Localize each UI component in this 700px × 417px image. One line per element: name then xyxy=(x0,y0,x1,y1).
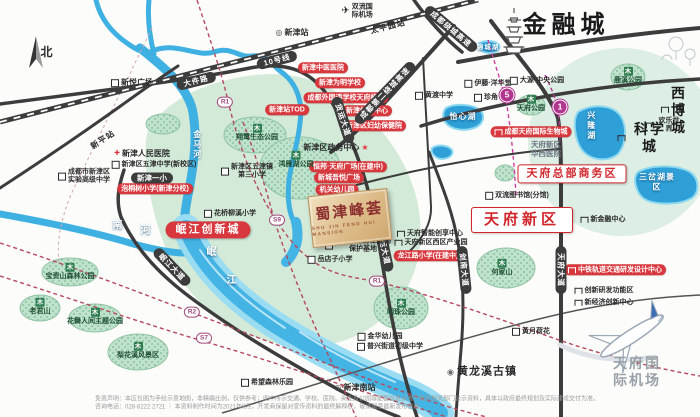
airplane-icon: ✈ xyxy=(341,6,349,18)
building-square-icon xyxy=(474,94,482,102)
label-wujin-no3-primary-text: 新津区五津镇 第三小学 xyxy=(231,164,273,181)
label-wujin-middle-school: 新津区五津中学(新校区) xyxy=(112,161,197,169)
building-square-icon xyxy=(241,379,249,387)
river-label-sanchahu: 三岔湖景区 xyxy=(636,172,679,191)
road-label-jiannan-avenue-text: 剑南大道 xyxy=(458,253,471,288)
label-happy-world-text: 欢乐世界 xyxy=(656,118,682,135)
metro-badge-line5: 5 xyxy=(500,88,515,103)
badge-zhongtie-rail-center: 中铁轨道交通研发设计中心 xyxy=(564,264,666,275)
park-label-huawurenjian: 木花舞人间主题公园 xyxy=(67,308,123,326)
label-ito-yokado: 伊藤·洋华堂 xyxy=(464,80,511,88)
badge-xinjin-tcm-hospital: 新津中医医院 xyxy=(298,62,348,73)
label-xinjin-no1-primary-text: 新津一小 xyxy=(137,174,167,183)
hospital-cross-icon: ✚ xyxy=(114,150,120,158)
label-renmin-hospital: ✚新津人民医院 xyxy=(114,149,170,159)
label-ito-yokado-text: 伊藤·洋华堂 xyxy=(474,80,511,88)
label-yuedianzi-primary-text: 岳店子小学 xyxy=(318,256,353,264)
road-label-line10-text: 10号线 xyxy=(263,52,292,67)
river-label-jinmahe-text: 金马河 xyxy=(192,130,202,160)
road-label-line10: 10号线 xyxy=(256,50,299,71)
station-label-taipingyuanzhan: 太平园站 xyxy=(369,18,406,36)
label-tianfu-airport-text: 天府国际机场 xyxy=(606,355,669,389)
badge-longjianglu-primary-text: 龙江路小学(在建中) xyxy=(398,252,459,260)
label-puxing-middle-school-text: 普兴街道初级中学 xyxy=(367,343,423,351)
label-new-finance-center: 新金融中心 xyxy=(581,216,626,224)
park-label-xiangly-eco-park: 木翔鹭生态公园 xyxy=(236,124,278,142)
badge-weiming-school: 新津为明学校 xyxy=(315,77,365,88)
label-huaqiao-liuxi-primary-text: 花桥柳溪小学 xyxy=(214,210,256,218)
map-labels: 北金融城西博城科学城天府国际机场◉黄龙溪古镇天府总部商务区天府新区岷江创新城新津… xyxy=(0,0,700,417)
project-logo: 蜀津峰荟SHU JIN FENG HUI MANSION xyxy=(308,188,393,248)
badge-fuyou-hospital-text: 新津区妇幼保健院 xyxy=(346,122,402,130)
label-new-economy-center: 新经济创新中心 xyxy=(575,299,634,307)
building-square-icon xyxy=(485,192,493,200)
park-label-tianfu-park: 木天府公园 xyxy=(517,95,545,113)
badge-weiming-school-text: 新津为明学校 xyxy=(319,79,361,87)
road-label-dajianlu: 大件路 xyxy=(176,71,217,91)
label-huaxi-hospital-tianfu-text: 天府新区 华西医院 xyxy=(531,140,561,158)
road-label-jiannan-avenue: 剑南大道 xyxy=(456,246,472,295)
label-jinrongcheng-text: 金融城 xyxy=(523,12,610,41)
disclaimer-line-2-text: 咨询电话：028-8222 2721 ｜ 本资料制作时间为2021年8月，开发商… xyxy=(95,404,425,411)
park-label-mingzhu-park-text: 明珠公园 xyxy=(387,309,415,317)
badge-minjiang-innovation-city-text: 岷江创新城 xyxy=(176,223,241,236)
badge-paotongshu-primary: 泡桐树小学(新津分校) xyxy=(117,183,193,194)
label-huanglongxi: ◉黄龙溪古镇 xyxy=(447,365,517,378)
label-innovation-rd-zone-text: 创新研发功能区 xyxy=(585,287,634,295)
metro-badge-s7-text: S7 xyxy=(200,334,208,342)
label-new-finance-center-text: 新金融中心 xyxy=(591,216,626,224)
label-hope-park-text: 希望森林乐园 xyxy=(251,379,293,387)
metro-station-icon: ◎ xyxy=(335,383,342,393)
river-label-jinchenghu-text: 锦城湖 xyxy=(477,44,500,52)
label-huaxi-hospital-tianfu: 天府新区 华西医院 xyxy=(531,140,561,158)
label-wujin-no3-primary: 新津区五津镇 第三小学 xyxy=(221,164,273,181)
park-tree-icon: 木 xyxy=(624,67,633,76)
building-square-icon xyxy=(112,161,120,169)
metro-badge-r1-north: R1 xyxy=(217,97,233,108)
park-tree-icon: 木 xyxy=(36,298,45,307)
label-renmin-hospital-text: 新津人民医院 xyxy=(122,149,170,159)
river-label-jinchenghu: 锦城湖 xyxy=(477,44,500,52)
building-square-icon xyxy=(357,343,365,351)
disclaimer-line-1: 免责声明：本区位图为手绘示意地图，非精确比例，仅供参考；图中所示交通、学校、医院… xyxy=(95,396,599,403)
metro-badge-line1-text: 1 xyxy=(558,102,563,112)
label-shuangliu-library-text: 双流图书馆(分馆) xyxy=(495,192,549,200)
label-xinjin-station: ◎新津站 xyxy=(276,28,309,38)
label-zhenjiao-text: 珍角 xyxy=(484,94,498,102)
label-hope-park: 希望森林乐园 xyxy=(241,379,293,387)
river-label-jiang: 江 xyxy=(227,275,238,287)
label-jinhua-kindergarten-text: 金华幼儿园 xyxy=(368,333,403,341)
building-gate-icon xyxy=(568,267,576,273)
building-square-icon xyxy=(308,256,316,264)
park-tree-icon: 木 xyxy=(498,259,507,268)
label-dayuan-central-park: 大源·中央公园 xyxy=(510,77,564,85)
label-wujin-middle-school-text: 新津区五津中学(新校区) xyxy=(122,161,197,169)
building-gate-icon xyxy=(661,107,669,113)
building-gate-icon xyxy=(395,240,403,246)
building-gate-icon xyxy=(618,135,626,141)
map-canvas: 北金融城西博城科学城天府国际机场◉黄龙溪古镇天府总部商务区天府新区岷江创新城新津… xyxy=(0,0,700,417)
metro-badge-r1-south-text: R1 xyxy=(373,277,381,285)
road-label-tianfu-avenue-text: 天府大道 xyxy=(557,253,566,287)
road-label-tianfu-avenue: 天府大道 xyxy=(556,246,567,294)
road-label-minjiang-avenue-text: 岷江大道 xyxy=(157,252,187,283)
river-label-nan-text: 南 xyxy=(113,220,124,232)
metro-badge-s9-text: S9 xyxy=(273,216,281,224)
badge-hengbang-plaza-text: 恒邦·天府广场(在建中) xyxy=(313,163,383,171)
badge-minjiang-innovation-city: 岷江创新城 xyxy=(166,221,251,238)
park-label-hejiashan-text: 何家山 xyxy=(492,269,513,277)
label-tianfu-smart-center: 天府智能创享中心 xyxy=(397,230,463,238)
river-label-he: 河 xyxy=(141,225,152,237)
badge-xinjin-tod-text: 新津站TOD xyxy=(269,106,305,114)
building-square-icon xyxy=(415,92,423,100)
badge-tianfu-hq-district-text: 天府总部商务区 xyxy=(527,167,618,180)
park-label-hejiashan: 木何家山 xyxy=(492,259,513,277)
label-shiyan-high-school: 成都市新津区 实验高级中学 xyxy=(58,169,110,186)
label-tianfu-west-industry-park-text: 天府新区西区产业园 xyxy=(405,239,468,247)
park-tree-icon: 木 xyxy=(292,151,301,160)
river-label-min-text: 岷 xyxy=(207,247,218,259)
badge-longjianglu-primary: 龙江路小学(在建中) xyxy=(394,250,463,261)
badge-paotongshu-primary-text: 泡桐树小学(新津分校) xyxy=(121,185,189,193)
label-jinhua-kindergarten: 金华幼儿园 xyxy=(358,333,403,341)
building-gate-icon xyxy=(575,288,583,294)
badge-xinjin-tod: 新津站TOD xyxy=(265,104,309,115)
road-label-raocheng-expwy: 成都绕城高速 xyxy=(423,4,480,54)
metro-badge-line1: 1 xyxy=(553,100,568,115)
park-label-tianfu-park-text: 天府公园 xyxy=(517,105,545,113)
badge-wuyue-plaza-text: 新城吾悦广场 xyxy=(318,174,360,182)
label-tianfu-west-industry-park: 天府新区西区产业园 xyxy=(395,239,468,247)
label-tianfu-smart-center-text: 天府智能创享中心 xyxy=(407,230,463,238)
park-tree-icon: 木 xyxy=(253,124,262,133)
label-puxing-middle-school: 普兴街道初级中学 xyxy=(357,343,423,351)
badge-biotown: 成都天府国际生物城 xyxy=(491,126,572,137)
park-label-hongyanhu-park-text: 鸿雁湖公园 xyxy=(279,161,314,169)
label-huangyue-lotus-text: 黄月荷花 xyxy=(522,328,550,336)
park-label-lihuaxi-text: 梨花溪风景区 xyxy=(117,352,159,360)
river-label-he-text: 河 xyxy=(141,225,152,237)
label-xinyue-plaza: 新悦广场 xyxy=(111,78,153,88)
road-label-minjiang-avenue: 岷江大道 xyxy=(151,246,192,288)
ancient-town-icon: ◉ xyxy=(447,367,455,377)
label-yuedianzi-primary: 岳店子小学 xyxy=(308,256,353,264)
badge-tianfu-new-area: 天府新区 xyxy=(471,207,573,233)
station-label-xinpingzhan: 新平站 xyxy=(89,129,117,152)
label-dayuan-central-park-text: 大源·中央公园 xyxy=(520,77,564,85)
park-label-laojunshan: 木老君山 xyxy=(30,298,51,316)
river-label-jiang-text: 江 xyxy=(227,275,238,287)
building-square-icon xyxy=(204,210,212,218)
river-label-jinmahe: 金马河 xyxy=(192,130,202,160)
label-xinjin-south-station: ◎新津南站 xyxy=(335,383,376,393)
metro-badge-s7: S7 xyxy=(196,333,212,344)
road-label-raocheng-expwy-text: 成都绕城高速 xyxy=(429,9,474,49)
badge-tianfu-new-area-text: 天府新区 xyxy=(484,211,560,229)
building-gate-icon xyxy=(581,217,589,223)
park-label-laojunshan-text: 老君山 xyxy=(30,308,51,316)
station-label-taipingyuanzhan-text: 太平园站 xyxy=(369,18,406,36)
park-label-baozishan-park: 木宝资山森林公园 xyxy=(46,263,95,281)
label-xinjin-south-station-text: 新津南站 xyxy=(343,383,375,393)
badge-wuyue-plaza: 新城吾悦广场 xyxy=(314,172,364,183)
building-square-icon xyxy=(58,173,66,181)
river-label-yixinhu-text: 怡心湖 xyxy=(450,112,477,122)
compass-north-label-text: 北 xyxy=(40,45,53,59)
star-icon: ★ xyxy=(361,143,368,153)
metro-badge-s9: S9 xyxy=(269,215,285,226)
building-gate-icon xyxy=(575,300,583,306)
road-label-dajianlu-text: 大件路 xyxy=(183,74,210,89)
badge-biotown-text: 成都天府国际生物城 xyxy=(505,128,568,136)
metro-badge-line5-text: 5 xyxy=(505,90,510,100)
label-tianfu-airport: 天府国际机场 xyxy=(606,355,669,389)
park-label-hongyanhu-park: 木鸿雁湖公园 xyxy=(279,151,314,169)
river-label-yixinhu: 怡心湖 xyxy=(450,112,477,122)
river-label-min: 岷 xyxy=(207,247,218,259)
label-xinjin-station-text: 新津站 xyxy=(284,28,308,38)
metro-badge-r1-north-text: R1 xyxy=(221,98,229,106)
label-shuangliu-airport: ✈双流国 际机场 xyxy=(341,4,372,21)
river-label-xinglonghu: 兴隆湖 xyxy=(586,111,596,141)
label-xinyue-plaza-text: 新悦广场 xyxy=(121,78,153,88)
park-tree-icon: 木 xyxy=(91,308,100,317)
compass-north-label: 北 xyxy=(40,45,53,59)
building-gate-icon xyxy=(495,129,503,135)
metro-badge-r2-text: R2 xyxy=(188,308,196,316)
building-square-icon xyxy=(510,77,518,85)
label-new-economy-center-text: 新经济创新中心 xyxy=(585,299,634,307)
building-square-icon xyxy=(111,79,119,87)
badge-xinjin-tcm-hospital-text: 新津中医医院 xyxy=(302,64,344,72)
park-label-luxi-park: 木鹿溪公园 xyxy=(614,67,642,85)
label-huangdu-middle-school-text: 黄渡中学 xyxy=(425,92,453,100)
metro-station-icon: ◎ xyxy=(276,28,283,38)
disclaimer-line-2: 咨询电话：028-8222 2721 ｜ 本资料制作时间为2021年8月，开发商… xyxy=(95,404,425,411)
metro-badge-r2: R2 xyxy=(184,307,200,318)
park-label-xiangly-eco-park-text: 翔鹭生态公园 xyxy=(236,134,278,142)
park-tree-icon: 木 xyxy=(527,95,536,104)
metro-badge-r1-south: R1 xyxy=(369,276,385,287)
label-huaqiao-liuxi-primary: 花桥柳溪小学 xyxy=(204,210,256,218)
park-tree-icon: 木 xyxy=(134,342,143,351)
label-shiyan-high-school-text: 成都市新津区 实验高级中学 xyxy=(68,169,110,186)
building-gate-icon xyxy=(397,231,405,237)
park-label-mingzhu-park: 木明珠公园 xyxy=(387,299,415,317)
park-label-lihuaxi: 木梨花溪风景区 xyxy=(117,342,159,360)
label-innovation-rd-zone: 创新研发功能区 xyxy=(575,287,634,295)
park-tree-icon: 木 xyxy=(397,299,406,308)
river-label-xinglonghu-text: 兴隆湖 xyxy=(586,111,596,141)
badge-hengbang-plaza: 恒邦·天府广场(在建中) xyxy=(309,161,387,172)
label-jinrongcheng: 金融城 xyxy=(523,12,610,41)
badge-zhongtie-rail-center-text: 中铁轨道交通研发设计中心 xyxy=(578,266,662,274)
label-xinjin-no1-primary: 新津一小 xyxy=(131,173,173,184)
park-label-huawurenjian-text: 花舞人间主题公园 xyxy=(67,318,123,326)
building-square-icon xyxy=(358,333,366,341)
badge-tianfu-hq-district: 天府总部商务区 xyxy=(518,164,627,183)
disclaimer-line-1-text: 免责声明：本区位图为手绘示意地图，非精确比例，仅供参考；图中所示交通、学校、医院… xyxy=(95,396,599,403)
building-gate-icon xyxy=(646,123,654,129)
park-label-luxi-park-text: 鹿溪公园 xyxy=(614,77,642,85)
building-square-icon xyxy=(464,80,472,88)
park-tree-icon: 木 xyxy=(66,263,75,272)
label-shuangliu-airport-text: 双流国 际机场 xyxy=(352,4,373,21)
label-shuangliu-library: 双流图书馆(分馆) xyxy=(485,192,549,200)
building-square-icon xyxy=(221,168,229,176)
river-label-nan: 南 xyxy=(113,220,124,232)
label-huanglongxi-text: 黄龙溪古镇 xyxy=(457,365,517,378)
label-zhenjiao: 珍角 xyxy=(474,94,498,102)
station-label-xinpingzhan-text: 新平站 xyxy=(89,129,117,152)
park-label-baozishan-park-text: 宝资山森林公园 xyxy=(46,273,95,281)
label-happy-world: 欢乐世界 xyxy=(646,118,682,135)
label-huangdu-middle-school: 黄渡中学 xyxy=(415,92,453,100)
building-square-icon xyxy=(512,328,520,336)
label-huangyue-lotus: 黄月荷花 xyxy=(512,328,550,336)
river-label-sanchahu-text: 三岔湖景区 xyxy=(636,172,679,191)
